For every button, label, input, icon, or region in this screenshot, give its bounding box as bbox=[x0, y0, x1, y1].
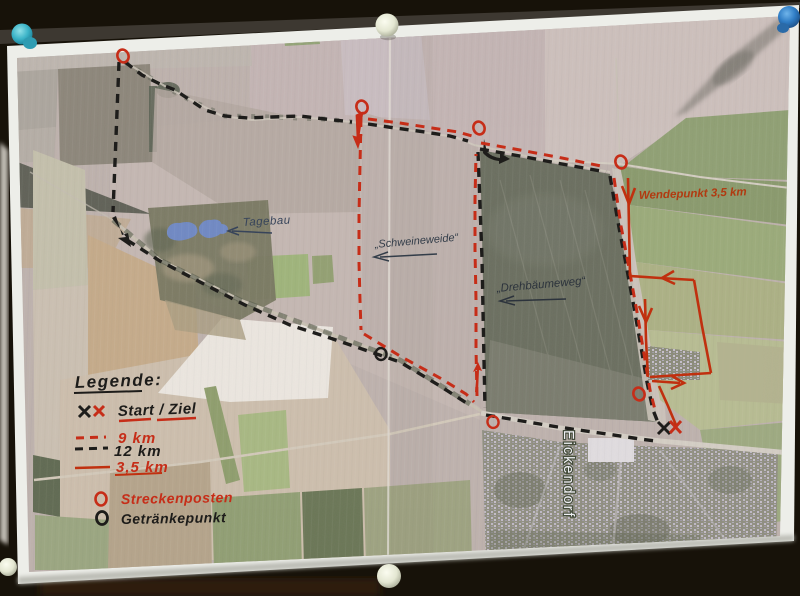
svg-text:Streckenposten: Streckenposten bbox=[121, 489, 233, 507]
svg-text:Start / Ziel: Start / Ziel bbox=[118, 400, 197, 420]
svg-text:Eickendorf: Eickendorf bbox=[560, 430, 576, 519]
svg-text:Legende:: Legende: bbox=[74, 370, 162, 392]
svg-text:Getränkepunkt: Getränkepunkt bbox=[121, 509, 227, 527]
svg-text:Tagebau: Tagebau bbox=[243, 215, 292, 229]
svg-text:12 km: 12 km bbox=[114, 443, 162, 460]
